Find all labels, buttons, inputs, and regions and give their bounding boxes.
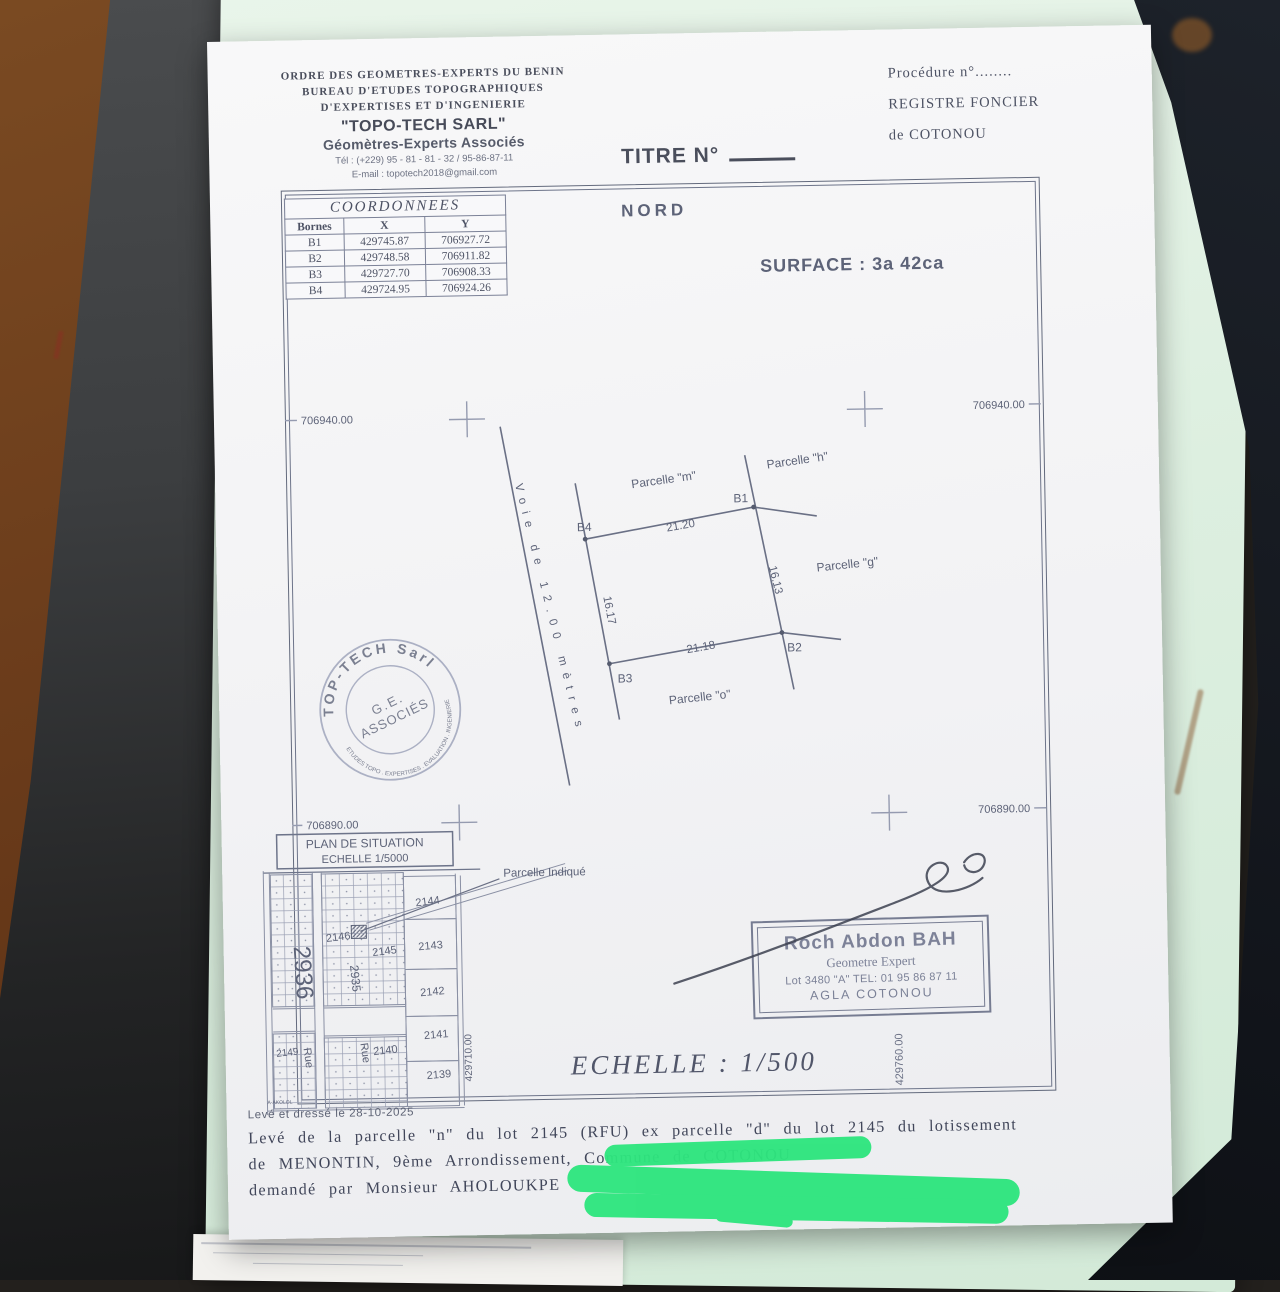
situation-title: PLAN DE SITUATION <box>306 835 424 851</box>
indicated-parcel-hatch <box>351 925 366 938</box>
letterhead: ORDRE DES GEOMETRES-EXPERTS DU BENIN BUR… <box>278 63 570 181</box>
grid-label-se: 706890.00 <box>978 803 1030 816</box>
photo-scene: ORDRE DES GEOMETRES-EXPERTS DU BENIN BUR… <box>0 0 1280 1280</box>
north-label: NORD <box>621 200 687 220</box>
lot-2139: 2139 <box>426 1068 451 1082</box>
handwritten-signature <box>652 827 1016 1034</box>
brown-spot <box>1172 18 1212 52</box>
coord-west-label: 429710.00 <box>463 1034 475 1082</box>
company-email: E-mail : topotech2018@gmail.com <box>279 165 569 181</box>
title-label: TITRE N° <box>621 144 719 169</box>
title-blank-line <box>729 141 795 161</box>
dim-bottom: 21.18 <box>686 639 716 656</box>
surface-label: SURFACE : 3a 42ca <box>760 253 944 276</box>
parcel-h-label: Parcelle "h" <box>766 449 829 472</box>
borne-b4: B4 <box>577 520 592 534</box>
lot-2141: 2141 <box>424 1028 449 1042</box>
survey-date-line: Levé et dressé le 28-10-2025 <box>248 1106 415 1121</box>
procedure-number: Procédure n°........ <box>888 61 1128 82</box>
dim-right: 16.13 <box>766 565 785 596</box>
indicated-parcel-label: Parcelle Indiquée <box>503 866 590 880</box>
situation-scale: ECHELLE 1/5000 <box>321 852 408 866</box>
dim-top: 21.20 <box>665 518 695 535</box>
main-scale-label: ECHELLE : 1/500 <box>571 1046 818 1082</box>
road-label: Voie de 12.00 mètres <box>512 482 584 728</box>
situation-map: PLAN DE SITUATION ECHELLE 1/5000 <box>254 821 589 1119</box>
borne-b3: B3 <box>618 671 633 685</box>
lot-2936: 2936 <box>288 945 319 1000</box>
borne-b1: B1 <box>733 491 748 505</box>
company-round-stamp: TOP-TECH Sarl ETUDES TOPO . EXPERTISES .… <box>297 616 484 804</box>
lot-2140: 2140 <box>373 1044 399 1059</box>
document-title: TITRE N° <box>621 141 795 169</box>
lot-2935: 2935 <box>347 964 364 992</box>
lot-2143: 2143 <box>418 939 443 953</box>
parcel-m-label: Parcelle "m" <box>630 468 697 491</box>
register-name: REGISTRE FONCIER <box>888 92 1128 113</box>
green-redaction-scribble <box>557 1125 1039 1244</box>
lot-2144: 2144 <box>415 894 441 909</box>
registry-block: Procédure n°........ REGISTRE FONCIER de… <box>888 61 1130 158</box>
grid-label-nw: 706940.00 <box>301 414 353 427</box>
street-name-small: A-AKOLOL <box>267 1100 292 1106</box>
parcel-o-label: Parcelle "o" <box>668 687 731 707</box>
parcel-g-label: Parcelle "g" <box>816 554 879 574</box>
survey-document-sheet: ORDRE DES GEOMETRES-EXPERTS DU BENIN BUR… <box>207 25 1173 1240</box>
dim-left: 16.17 <box>600 595 617 626</box>
borne-b2: B2 <box>787 640 802 654</box>
lot-2142: 2142 <box>420 985 445 999</box>
register-city: de COTONOU <box>889 123 1129 144</box>
easting-label: 429760.00 <box>893 1033 906 1085</box>
grid-label-ne: 706940.00 <box>973 399 1025 412</box>
